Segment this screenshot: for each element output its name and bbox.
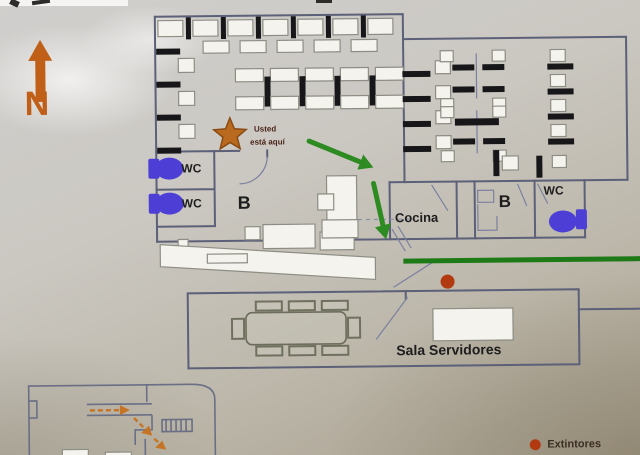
inset-route-arrows [90, 405, 166, 451]
you-are-here-star [214, 118, 247, 149]
floor-plan-photo: N Usted está aquí WC WC B Cocina B WC Sa… [0, 0, 640, 455]
room-label-sala-servidores: Sala Servidores [396, 341, 501, 358]
assembly-point-line [403, 259, 640, 261]
desks-left-room [156, 15, 404, 154]
floor-plan: N Usted está aquí WC WC B Cocina B WC Sa… [0, 0, 640, 455]
you-are-here-label-2: está aquí [250, 137, 285, 147]
inset-overview-map [29, 384, 216, 455]
desks-right-room [402, 49, 574, 179]
toilet-icon-left-top [148, 157, 183, 179]
legend-extinguisher-label: Extintores [547, 438, 601, 451]
room-label-b-left: B [238, 193, 251, 214]
room-label-b-right: B [499, 192, 511, 212]
fire-extinguisher-dot [441, 275, 455, 289]
toilet-icon-right [549, 209, 587, 232]
conference-table [232, 301, 361, 356]
you-are-here-label-1: Usted [254, 124, 276, 134]
evacuation-arrow-1 [309, 140, 373, 170]
room-label-wc-left-bottom: WC [182, 196, 202, 210]
legend-extinguisher-dot [530, 439, 541, 450]
reception-area [159, 175, 375, 281]
room-label-wc-left-top: WC [181, 161, 201, 175]
server-rack [433, 308, 513, 341]
toilet-icon-left-bottom [149, 192, 184, 214]
room-label-cocina: Cocina [395, 210, 438, 225]
north-label: N [24, 85, 49, 124]
room-label-wc-right: WC [544, 183, 564, 197]
evacuation-arrow-2 [374, 183, 392, 239]
